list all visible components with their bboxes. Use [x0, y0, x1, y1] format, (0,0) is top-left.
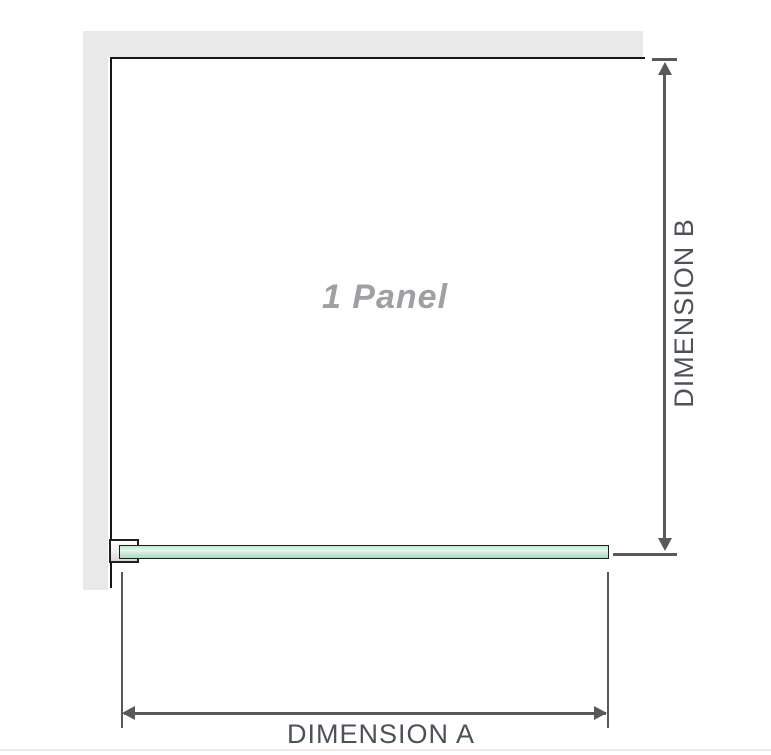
arrow-left-icon [122, 706, 135, 720]
shower-screen-diagram: 1 Panel DIMENSION B DIMENSION A [0, 0, 771, 755]
bottom-divider [0, 749, 771, 751]
panel-count-label: 1 Panel [255, 277, 515, 317]
dimension-a-left-extension-line [121, 572, 123, 728]
panel-outline-left [110, 57, 112, 588]
dimension-b-label: DIMENSION B [669, 198, 699, 428]
arrow-right-icon [594, 706, 607, 720]
dimension-a-right-extension-line [607, 572, 609, 728]
arrow-down-icon [658, 538, 672, 551]
wall-top-strip [83, 31, 643, 57]
dimension-b-line [663, 66, 666, 545]
panel-outline-top [110, 57, 645, 59]
dimension-b-top-tick [652, 58, 677, 61]
dimension-b-bottom-tick [613, 553, 677, 556]
glass-panel-bar [119, 545, 609, 559]
wall-left-strip [83, 31, 108, 590]
dimension-a-label: DIMENSION A [250, 718, 512, 750]
dimension-a-line [124, 712, 606, 715]
